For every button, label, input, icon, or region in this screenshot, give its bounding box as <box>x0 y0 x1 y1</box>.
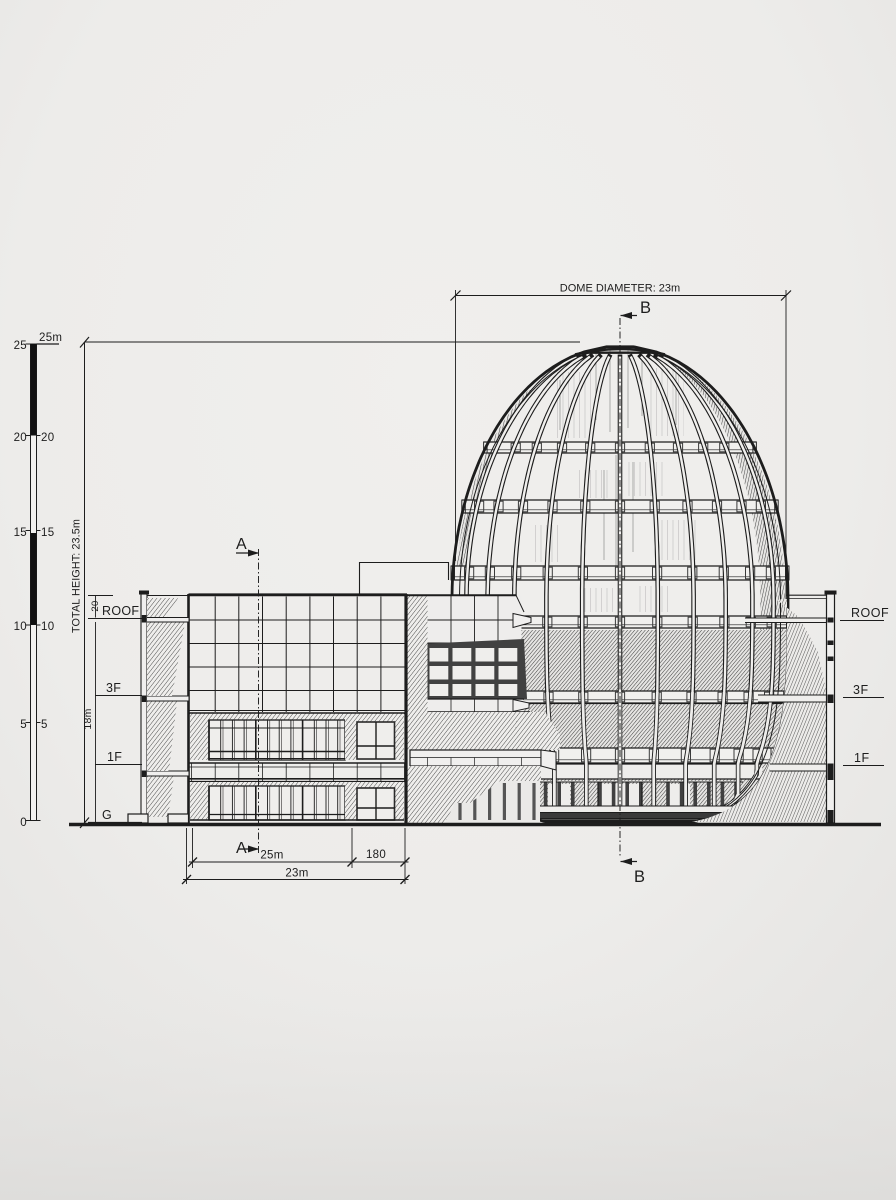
svg-text:23m: 23m <box>285 868 308 880</box>
svg-text:5: 5 <box>20 719 27 731</box>
svg-text:180: 180 <box>366 849 386 861</box>
svg-text:10: 10 <box>14 621 27 633</box>
svg-text:A: A <box>236 536 247 553</box>
svg-text:3F: 3F <box>853 683 869 697</box>
svg-text:G: G <box>102 808 112 822</box>
svg-text:3F: 3F <box>106 681 121 695</box>
svg-text:B: B <box>640 299 651 317</box>
svg-text:20: 20 <box>41 432 54 444</box>
svg-text:1F: 1F <box>854 751 870 765</box>
svg-text:10: 10 <box>41 621 54 633</box>
svg-text:20: 20 <box>14 432 27 444</box>
svg-text:15: 15 <box>41 527 54 539</box>
svg-text:5: 5 <box>41 719 48 731</box>
svg-text:15: 15 <box>14 527 27 539</box>
svg-text:1F: 1F <box>107 750 122 764</box>
svg-text:0: 0 <box>20 817 27 829</box>
svg-text:25m: 25m <box>39 332 62 344</box>
svg-text:TOTAL HEIGHT: 23.5m: TOTAL HEIGHT: 23.5m <box>71 519 83 633</box>
svg-text:DOME DIAMETER: 23m: DOME DIAMETER: 23m <box>560 283 680 295</box>
svg-text:B: B <box>634 868 645 886</box>
svg-text:18m: 18m <box>82 708 94 729</box>
svg-text:25m: 25m <box>260 850 283 862</box>
svg-text:20: 20 <box>90 600 101 611</box>
svg-text:ROOF: ROOF <box>851 606 889 620</box>
svg-text:ROOF: ROOF <box>102 604 139 618</box>
svg-text:25: 25 <box>14 340 27 352</box>
